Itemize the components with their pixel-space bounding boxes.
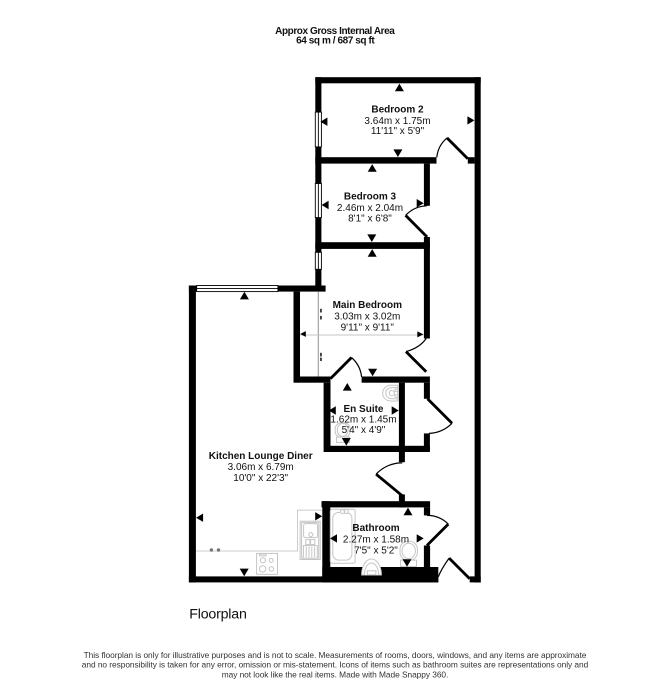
svg-text:Bathroom: Bathroom: [352, 523, 399, 534]
svg-text:En Suite: En Suite: [343, 404, 383, 415]
svg-text:and no responsibility is taken: and no responsibility is taken for any e…: [82, 660, 589, 670]
svg-text:Bedroom 3: Bedroom 3: [344, 192, 397, 203]
svg-text:5'4" x 4'9": 5'4" x 4'9": [342, 425, 386, 436]
svg-text:10'0" x 22'3": 10'0" x 22'3": [233, 473, 288, 484]
svg-text:2.46m x 2.04m: 2.46m x 2.04m: [337, 203, 403, 214]
svg-text:2.27m x 1.58m: 2.27m x 1.58m: [343, 535, 409, 546]
svg-text:11'11" x 5'9": 11'11" x 5'9": [371, 126, 425, 137]
svg-text:3.06m x 6.79m: 3.06m x 6.79m: [228, 462, 294, 473]
svg-text:This floorplan is only for ill: This floorplan is only for illustrative …: [84, 650, 587, 660]
svg-text:7'5" x 5'2": 7'5" x 5'2": [354, 546, 398, 557]
svg-text:Main Bedroom: Main Bedroom: [333, 300, 403, 311]
svg-text:1.62m x 1.45m: 1.62m x 1.45m: [330, 415, 396, 426]
svg-text:64 sq m / 687 sq ft: 64 sq m / 687 sq ft: [296, 36, 375, 47]
svg-text:Kitchen Lounge Diner: Kitchen Lounge Diner: [209, 451, 313, 462]
svg-text:may not look like the real ite: may not look like the real items. Made w…: [222, 670, 449, 680]
svg-text:Bedroom 2: Bedroom 2: [371, 104, 424, 115]
svg-text:Floorplan: Floorplan: [189, 606, 246, 622]
svg-text:3.03m x 3.02m: 3.03m x 3.02m: [334, 311, 400, 322]
svg-text:9'11" x 9'11": 9'11" x 9'11": [341, 323, 395, 334]
svg-text:8'1" x 6'8": 8'1" x 6'8": [348, 213, 392, 224]
